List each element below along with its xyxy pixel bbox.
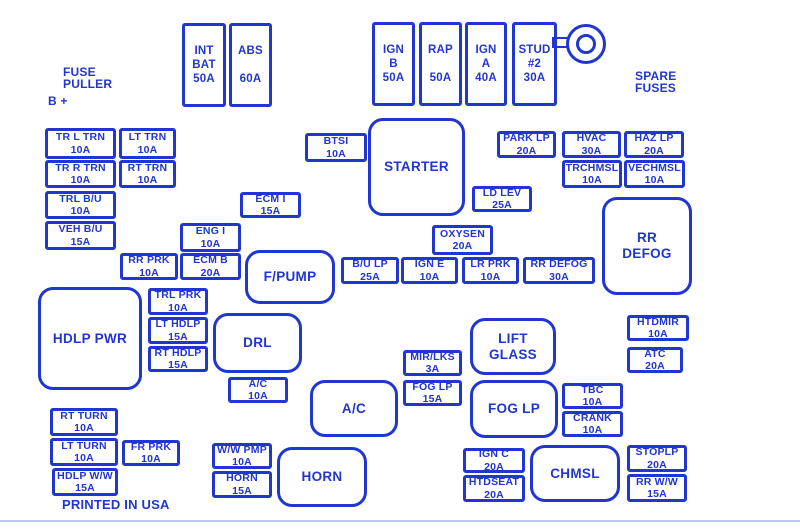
spare-fuses-label: SPAREFUSES bbox=[635, 70, 676, 94]
relay-fog-lp: FOG LP bbox=[470, 380, 558, 438]
fuse-abs-label: ABS bbox=[238, 44, 263, 58]
fuse-int-bat-label: BAT bbox=[192, 58, 215, 72]
fuse-stud-2-label: 30A bbox=[524, 71, 546, 85]
fuse-trl-prk-label: 10A bbox=[168, 302, 188, 315]
fuse-tr-l-trn: TR L TRN10A bbox=[45, 128, 116, 159]
fuse-fog-lp-fuse-label: FOG LP bbox=[412, 381, 452, 394]
fuse-ign-c-label: IGN C bbox=[479, 448, 509, 461]
fuse-lt-turn-label: 10A bbox=[74, 452, 94, 465]
fuse-tr-r-trn-label: 10A bbox=[71, 174, 91, 187]
fuse-stud-2-label: #2 bbox=[528, 57, 541, 71]
fuse-trl-bu: TRL B/U10A bbox=[45, 191, 116, 219]
fuse-lt-hdlp-label: LT HDLP bbox=[156, 318, 201, 331]
fuse-ign-a: IGNA40A bbox=[465, 22, 507, 106]
bottom-divider bbox=[0, 520, 800, 522]
fuse-ign-c-label: 20A bbox=[484, 461, 504, 474]
relay-horn: HORN bbox=[277, 447, 367, 507]
fuse-tbc-label: 10A bbox=[583, 396, 603, 409]
fuse-tr-r-trn-label: TR R TRN bbox=[55, 162, 106, 175]
fuse-rt-turn-label: 10A bbox=[74, 422, 94, 435]
fuse-ign-b: IGNB50A bbox=[372, 22, 415, 106]
fuse-hdlp-ww-label: HDLP W/W bbox=[57, 470, 113, 483]
fuse-eng-i-label: 10A bbox=[201, 238, 221, 251]
fuse-rt-turn-label: RT TURN bbox=[60, 410, 107, 423]
fuse-ign-e: IGN E10A bbox=[401, 257, 458, 284]
relay-ac: A/C bbox=[310, 380, 398, 437]
fuse-fr-prk-label: 10A bbox=[141, 453, 161, 466]
relay-f-pump: F/PUMP bbox=[245, 250, 335, 304]
fuse-rt-trn-label: RT TRN bbox=[128, 162, 168, 175]
fuse-rt-hdlp-label: RT HDLP bbox=[155, 347, 202, 360]
fuse-veh-bu: VEH B/U15A bbox=[45, 221, 116, 250]
fuse-rap-label: RAP bbox=[428, 43, 453, 57]
fuse-park-lp-label: 20A bbox=[517, 145, 537, 158]
fuse-lr-prk-label: 10A bbox=[481, 271, 501, 284]
fuse-ecm-i-label: ECM I bbox=[255, 193, 285, 206]
fuse-crank-label: CRANK bbox=[573, 412, 612, 425]
fuse-ecm-b-label: ECM B bbox=[193, 254, 228, 267]
fuse-mir-lks-label: 3A bbox=[426, 363, 440, 376]
fuse-rt-trn: RT TRN10A bbox=[119, 160, 176, 188]
b-plus-label-text: B + bbox=[48, 95, 68, 107]
fuse-trchmsl-label: TRCHMSL bbox=[566, 162, 619, 175]
relay-starter-label: STARTER bbox=[384, 159, 449, 175]
fuse-rr-defog-fuse-label: 30A bbox=[549, 271, 569, 284]
fuse-lt-trn-label: LT TRN bbox=[129, 131, 167, 144]
fuse-ecm-i-label: 15A bbox=[261, 205, 281, 218]
fuse-rr-ww-label: RR W/W bbox=[636, 476, 678, 489]
fuse-hvac-label: HVAC bbox=[577, 132, 607, 145]
fuse-crank-label: 10A bbox=[583, 424, 603, 437]
fuse-lt-hdlp: LT HDLP15A bbox=[148, 317, 208, 344]
fuse-rt-hdlp: RT HDLP15A bbox=[148, 346, 208, 372]
fuse-hvac-label: 30A bbox=[582, 145, 602, 158]
fuse-bu-lp-label: B/U LP bbox=[352, 258, 388, 271]
relay-f-pump-label: F/PUMP bbox=[264, 269, 317, 285]
fuse-park-lp: PARK LP20A bbox=[497, 131, 556, 158]
fuse-tr-r-trn: TR R TRN10A bbox=[45, 160, 116, 188]
fuse-rr-defog-fuse: RR DEFOG30A bbox=[523, 257, 595, 284]
fuse-trl-prk: TRL PRK10A bbox=[148, 288, 208, 315]
relay-drl-label: DRL bbox=[243, 335, 272, 351]
fuse-trl-bu-label: 10A bbox=[71, 205, 91, 218]
relay-starter: STARTER bbox=[368, 118, 465, 216]
fuse-lr-prk-label: LR PRK bbox=[470, 258, 510, 271]
fuse-horn-fuse-label: 15A bbox=[232, 485, 252, 498]
fuse-lt-turn: LT TURN10A bbox=[50, 438, 118, 466]
fuse-ac-fuse-label: A/C bbox=[249, 378, 268, 391]
fuse-ac-fuse-label: 10A bbox=[248, 390, 268, 403]
fuse-int-bat-label: 50A bbox=[193, 72, 215, 86]
spare-fuses-label-text: FUSES bbox=[635, 82, 676, 94]
fuse-int-bat: INTBAT50A bbox=[182, 23, 226, 107]
fuse-btsi: BTSI10A bbox=[305, 133, 367, 162]
fuse-rr-ww-label: 15A bbox=[647, 488, 667, 501]
fuse-trchmsl: TRCHMSL10A bbox=[562, 160, 622, 188]
fuse-htdseat: HTDSEAT20A bbox=[463, 475, 525, 502]
fuse-abs-label: 60A bbox=[240, 72, 262, 86]
relay-hdlp-pwr-label: HDLP PWR bbox=[53, 331, 127, 347]
fuse-oxysen-label: 20A bbox=[453, 240, 473, 253]
fuse-rap-label bbox=[439, 57, 442, 71]
fuse-fr-prk: FR PRK10A bbox=[122, 440, 180, 466]
fuse-tbc-label: TBC bbox=[581, 384, 603, 397]
fuse-park-lp-label: PARK LP bbox=[503, 132, 550, 145]
fuse-stud-2-label: STUD bbox=[518, 43, 550, 57]
fuse-ign-b-label: 50A bbox=[383, 71, 405, 85]
fuse-rap-label: 50A bbox=[430, 71, 452, 85]
fuse-ign-e-label: 10A bbox=[420, 271, 440, 284]
b-plus-label: B + bbox=[48, 95, 68, 107]
fuse-lr-prk: LR PRK10A bbox=[462, 257, 519, 284]
fuse-ecm-b: ECM B20A bbox=[180, 253, 241, 280]
printed-in-usa-label: PRINTED IN USA bbox=[62, 498, 170, 511]
relay-lift-glass-label: LIFT GLASS bbox=[473, 331, 553, 363]
relay-lift-glass: LIFT GLASS bbox=[470, 318, 556, 375]
fuse-mir-lks: MIR/LKS3A bbox=[403, 350, 462, 376]
fuse-ign-c: IGN C20A bbox=[463, 448, 525, 473]
fuse-lt-hdlp-label: 15A bbox=[168, 331, 188, 344]
relay-ac-label: A/C bbox=[342, 401, 366, 417]
relay-chmsl-label: CHMSL bbox=[550, 466, 600, 482]
fuse-ign-a-label: IGN bbox=[475, 43, 496, 57]
fuse-fog-lp-fuse: FOG LP15A bbox=[403, 380, 462, 406]
fuse-hdlp-ww-label: 15A bbox=[75, 482, 95, 495]
fuse-veh-bu-label: VEH B/U bbox=[59, 223, 103, 236]
fuse-trl-prk-label: TRL PRK bbox=[155, 289, 202, 302]
fuse-horn-fuse: HORN15A bbox=[212, 471, 272, 498]
fuse-ecm-b-label: 20A bbox=[201, 267, 221, 280]
fuse-haz-lp: HAZ LP20A bbox=[624, 131, 684, 158]
fuse-veh-bu-label: 15A bbox=[71, 236, 91, 249]
fuse-ld-lev-label: 25A bbox=[492, 199, 512, 212]
fuse-hvac: HVAC30A bbox=[562, 131, 621, 158]
fuse-btsi-label: BTSI bbox=[324, 135, 349, 148]
fuse-eng-i: ENG I10A bbox=[180, 223, 241, 252]
fuse-rap: RAP 50A bbox=[419, 22, 462, 106]
relay-chmsl: CHMSL bbox=[530, 445, 620, 502]
fuse-hdlp-ww: HDLP W/W15A bbox=[52, 468, 118, 496]
fuse-box-diagram: TR L TRN10ALT TRN10ATR R TRN10ART TRN10A… bbox=[0, 0, 800, 531]
fuse-haz-lp-label: 20A bbox=[644, 145, 664, 158]
fuse-oxysen-label: OXYSEN bbox=[440, 228, 485, 241]
fuse-ign-b-label: B bbox=[389, 57, 398, 71]
fuse-bu-lp-label: 25A bbox=[360, 271, 380, 284]
fuse-trchmsl-label: 10A bbox=[582, 174, 602, 187]
fuse-haz-lp-label: HAZ LP bbox=[634, 132, 673, 145]
fuse-stoplp-label: STOPLP bbox=[635, 446, 678, 459]
fuse-abs-label bbox=[249, 58, 252, 72]
fuse-ac-fuse: A/C10A bbox=[228, 377, 288, 403]
relay-hdlp-pwr: HDLP PWR bbox=[38, 287, 142, 390]
fuse-tr-l-trn-label: 10A bbox=[71, 144, 91, 157]
fuse-rt-turn: RT TURN10A bbox=[50, 408, 118, 436]
fuse-puller-label-text: PULLER bbox=[63, 78, 112, 90]
fuse-ww-pmp-label: W/W PMP bbox=[217, 444, 267, 457]
fuse-eng-i-label: ENG I bbox=[196, 225, 226, 238]
fuse-tbc: TBC10A bbox=[562, 383, 623, 409]
fuse-btsi-label: 10A bbox=[326, 148, 346, 161]
fuse-fr-prk-label: FR PRK bbox=[131, 441, 171, 454]
fuse-tr-l-trn-label: TR L TRN bbox=[56, 131, 105, 144]
fuse-horn-fuse-label: HORN bbox=[226, 472, 258, 485]
fuse-ld-lev: LD LEV25A bbox=[472, 186, 532, 212]
fuse-abs: ABS 60A bbox=[229, 23, 272, 107]
fuse-rt-trn-label: 10A bbox=[138, 174, 158, 187]
fuse-lt-trn-label: 10A bbox=[138, 144, 158, 157]
relay-drl: DRL bbox=[213, 313, 302, 373]
fuse-rr-ww: RR W/W15A bbox=[627, 474, 687, 502]
fuse-puller-label: FUSEPULLER bbox=[63, 66, 112, 90]
fuse-atc-label: 20A bbox=[645, 360, 665, 373]
fuse-atc-label: ATC bbox=[644, 348, 665, 361]
fuse-fog-lp-fuse-label: 15A bbox=[423, 393, 443, 406]
fuse-oxysen: OXYSEN20A bbox=[432, 225, 493, 255]
fuse-bu-lp: B/U LP25A bbox=[341, 257, 399, 284]
fuse-rr-prk-label: 10A bbox=[139, 267, 159, 280]
fuse-htdmir-label: 10A bbox=[648, 328, 668, 341]
fuse-stud-2: STUD#230A bbox=[512, 22, 557, 106]
spare-stud-ring-icon bbox=[576, 34, 596, 54]
relay-horn-label: HORN bbox=[302, 469, 343, 485]
relay-rr-defog-label: RR bbox=[637, 230, 657, 246]
fuse-htdmir-label: HTDMIR bbox=[637, 316, 679, 329]
printed-in-usa-label-text: PRINTED IN USA bbox=[62, 498, 170, 511]
fuse-stoplp-label: 20A bbox=[647, 459, 667, 472]
relay-fog-lp-label: FOG LP bbox=[488, 401, 540, 417]
fuse-lt-trn: LT TRN10A bbox=[119, 128, 176, 159]
fuse-rr-prk-label: RR PRK bbox=[128, 254, 169, 267]
fuse-lt-turn-label: LT TURN bbox=[61, 440, 107, 453]
fuse-trl-bu-label: TRL B/U bbox=[59, 193, 102, 206]
fuse-int-bat-label: INT bbox=[194, 44, 213, 58]
relay-rr-defog: RRDEFOG bbox=[602, 197, 692, 295]
fuse-htdmir: HTDMIR10A bbox=[627, 315, 689, 341]
fuse-ld-lev-label: LD LEV bbox=[483, 187, 522, 200]
fuse-stoplp: STOPLP20A bbox=[627, 445, 687, 472]
fuse-vechmsl: VECHMSL10A bbox=[624, 160, 685, 188]
fuse-ww-pmp-label: 10A bbox=[232, 456, 252, 469]
fuse-rt-hdlp-label: 15A bbox=[168, 359, 188, 372]
fuse-htdseat-label: HTDSEAT bbox=[469, 476, 519, 489]
fuse-ign-a-label: A bbox=[482, 57, 491, 71]
fuse-ign-e-label: IGN E bbox=[415, 258, 445, 271]
fuse-ww-pmp: W/W PMP10A bbox=[212, 443, 272, 469]
fuse-ign-b-label: IGN bbox=[383, 43, 404, 57]
fuse-vechmsl-label: 10A bbox=[645, 174, 665, 187]
fuse-atc: ATC20A bbox=[627, 347, 683, 373]
fuse-mir-lks-label: MIR/LKS bbox=[410, 351, 455, 364]
fuse-ign-a-label: 40A bbox=[475, 71, 497, 85]
fuse-vechmsl-label: VECHMSL bbox=[628, 162, 681, 175]
fuse-crank: CRANK10A bbox=[562, 411, 623, 437]
fuse-htdseat-label: 20A bbox=[484, 489, 504, 502]
fuse-ecm-i: ECM I15A bbox=[240, 192, 301, 218]
fuse-rr-defog-fuse-label: RR DEFOG bbox=[530, 258, 587, 271]
fuse-rr-prk: RR PRK10A bbox=[120, 253, 178, 280]
relay-rr-defog-label: DEFOG bbox=[622, 246, 672, 262]
